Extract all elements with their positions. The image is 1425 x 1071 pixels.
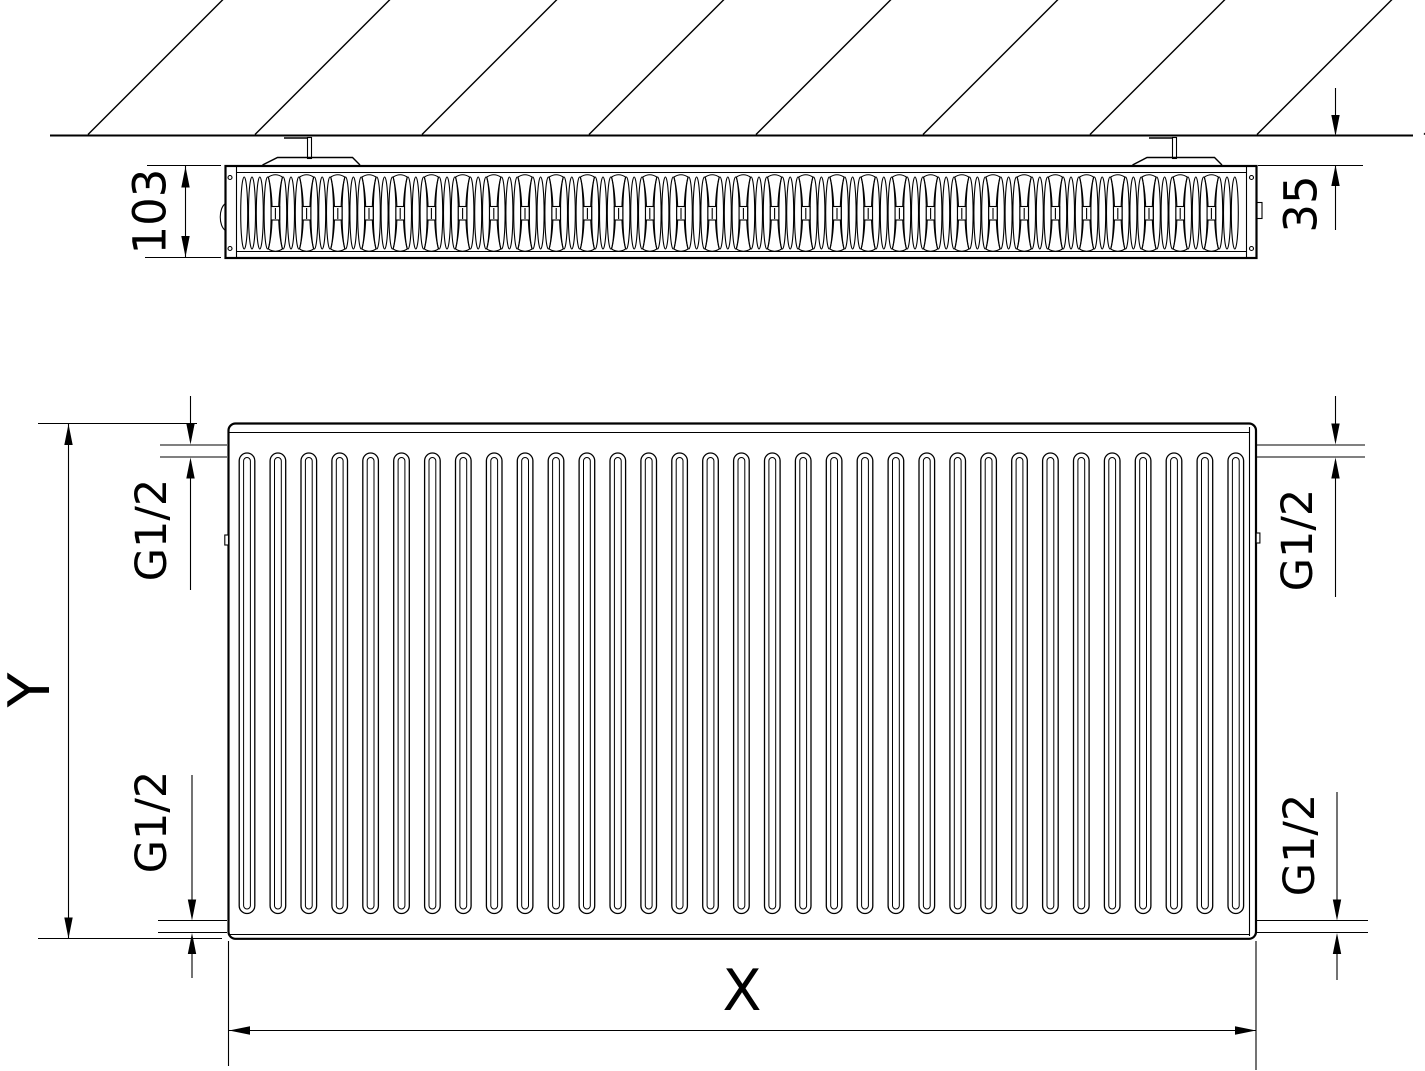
dimension-depth: 103: [124, 166, 222, 258]
weld-tab-right: [1256, 533, 1260, 543]
connection-size-label: G1/2: [127, 771, 177, 874]
radiator-technical-drawing: 103 35: [0, 0, 1425, 1071]
dimension-wall-distance: 35: [1258, 88, 1363, 233]
dimension-height: Y: [0, 424, 222, 939]
depth-dimension-label: 103: [124, 169, 177, 255]
connection-size-label: G1/2: [127, 479, 177, 582]
connection-stub-top-left: [160, 445, 227, 457]
bracket-stem: [1173, 138, 1177, 159]
bracket-clamp: [1133, 158, 1223, 166]
radiator-top-view: [220, 166, 1262, 258]
weld-tab-left: [225, 535, 229, 545]
wall-distance-label: 35: [1275, 175, 1328, 232]
mounting-bracket-right: [1133, 138, 1223, 166]
width-dimension-label: X: [722, 958, 761, 1024]
dimension-connection-bottom-right: G1/2: [1275, 792, 1337, 980]
dimension-connection-top-right: G1/2: [1273, 396, 1336, 597]
connection-stub-bottom-right: [1257, 921, 1368, 933]
connection-size-label: G1/2: [1273, 489, 1323, 592]
mounting-bracket-left: [263, 138, 361, 166]
wall-hatching: [88, 0, 1425, 135]
connection-stub-top-right: [1257, 445, 1365, 457]
connection-stub-bottom-left: [158, 921, 227, 933]
wall-section: [50, 0, 1425, 136]
dimension-width: X: [229, 941, 1257, 1070]
height-dimension-label: Y: [0, 672, 63, 708]
front-view-outline: [229, 424, 1257, 939]
bracket-stem: [308, 138, 312, 159]
dimension-connection-bottom-left: G1/2: [127, 771, 192, 978]
connection-size-label: G1/2: [1275, 794, 1325, 897]
radiator-front-view: [158, 424, 1368, 939]
dimension-connection-top-left: G1/2: [127, 396, 191, 590]
